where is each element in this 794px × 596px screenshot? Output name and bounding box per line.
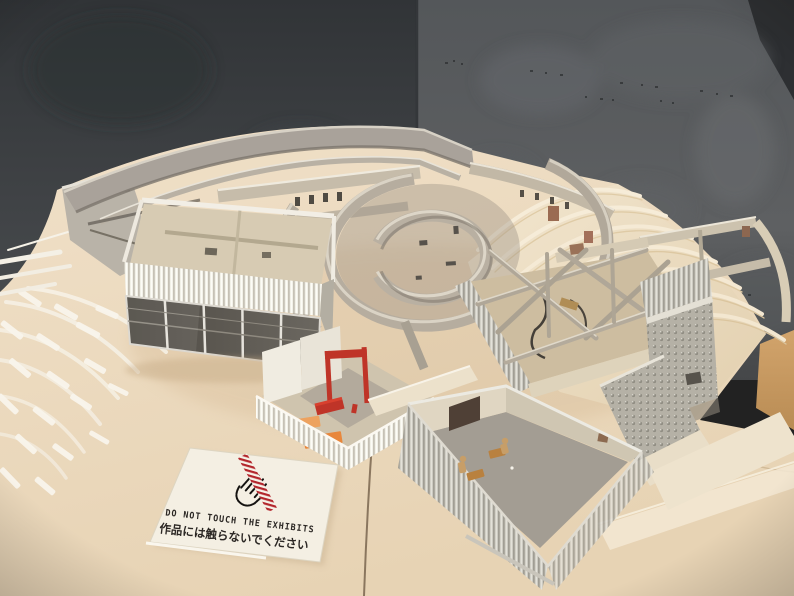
photo-architectural-model-exhibit: DO NOT TOUCH THE EXHIBITS 作品には触らないでください [0, 0, 794, 596]
photo-vignette [0, 0, 794, 596]
